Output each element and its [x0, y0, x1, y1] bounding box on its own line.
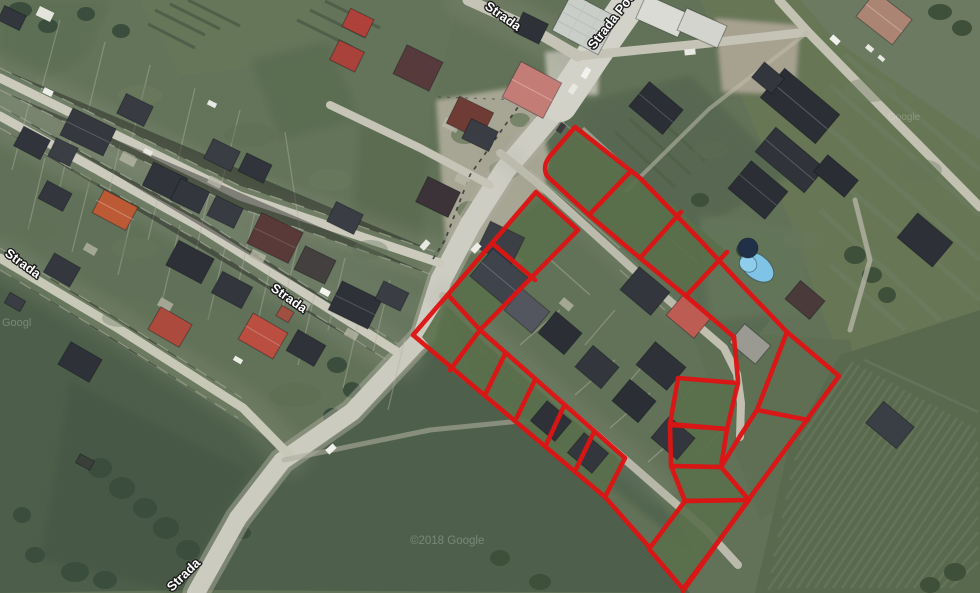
svg-text:©2018 Google: ©2018 Google	[410, 535, 484, 547]
svg-text:Google: Google	[888, 112, 921, 123]
svg-text:Googl: Googl	[2, 317, 31, 329]
